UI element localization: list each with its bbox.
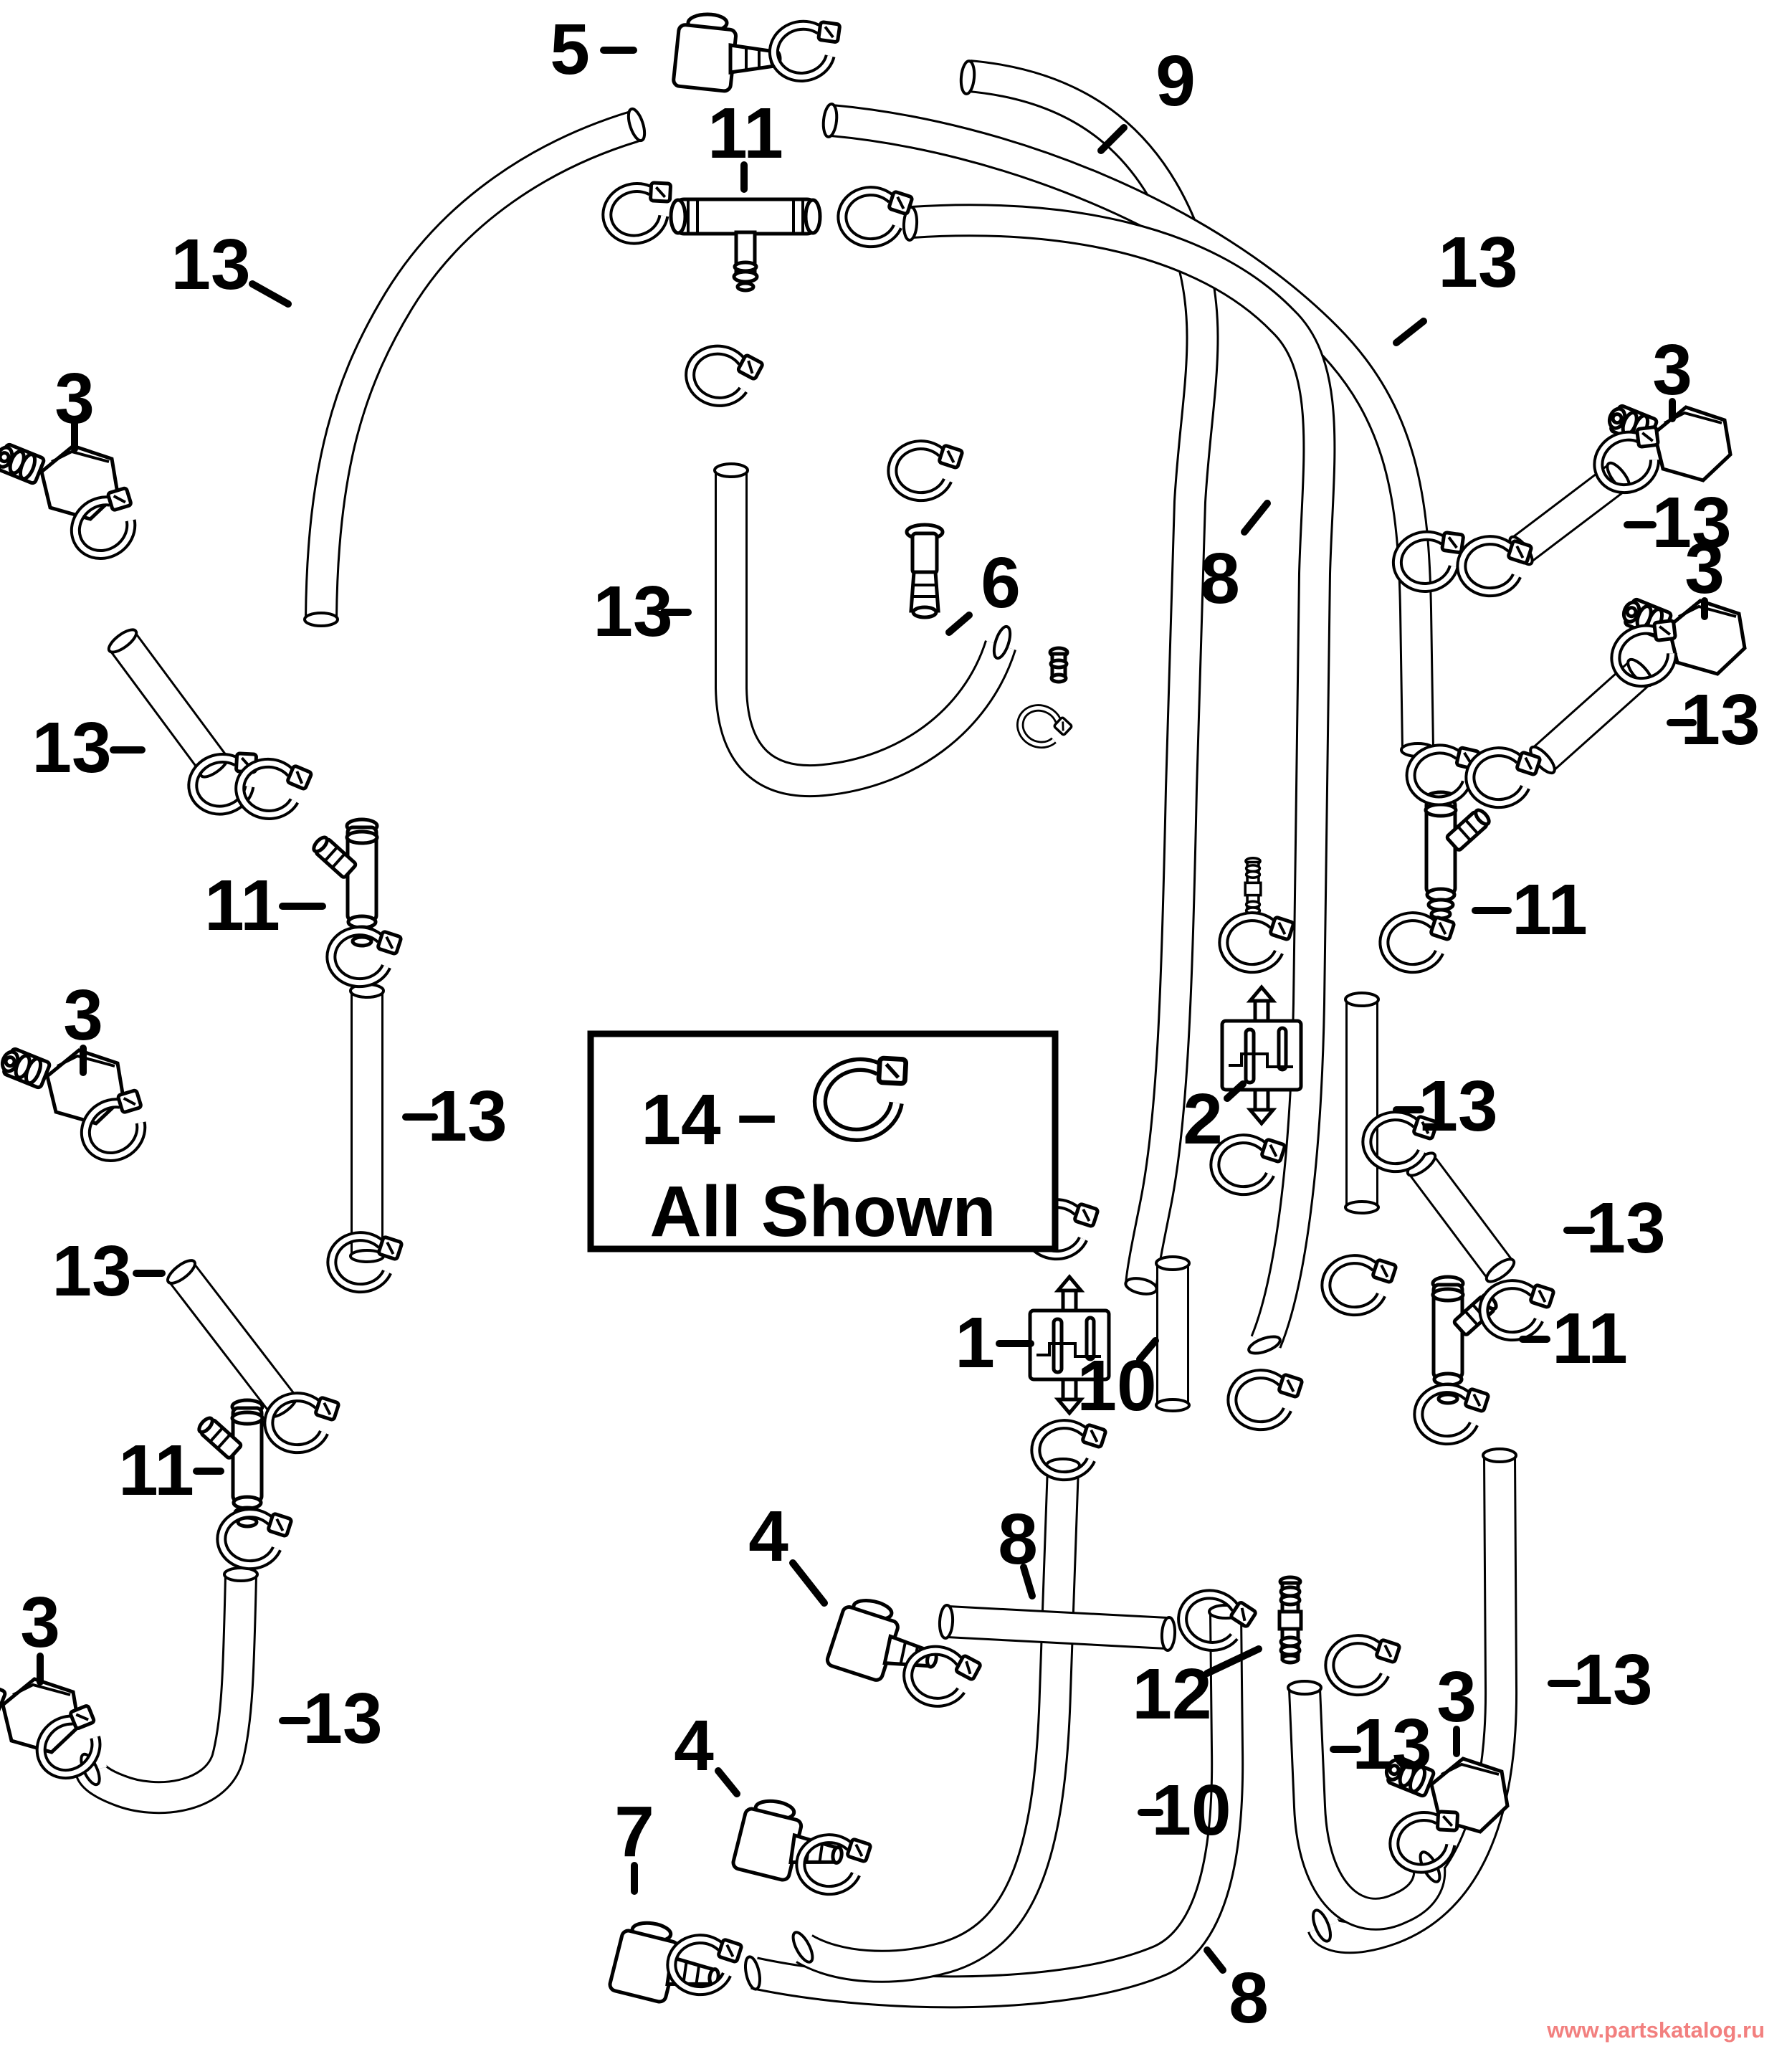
hose-13-bottom-left <box>77 1568 257 1797</box>
hose-clamp <box>686 346 764 409</box>
hose-clamp <box>904 1646 982 1709</box>
hose-8-middle <box>939 1605 1176 1651</box>
hose-clamp <box>770 19 848 82</box>
small-fitting <box>1050 648 1067 682</box>
callout-3-l2: 3 <box>63 975 103 1055</box>
note-box-caption: All Shown <box>649 1171 996 1252</box>
callout-13-tr: 13 <box>1438 222 1517 303</box>
hose-clamp <box>1470 752 1540 804</box>
callout-10-a: 10 <box>1077 1346 1156 1426</box>
hose-13-right-angled-middle <box>1527 656 1656 776</box>
hose-clamp <box>1326 1260 1396 1311</box>
callout-11-r2: 11 <box>1552 1298 1628 1379</box>
watermark-link[interactable]: www.partskatalog.ru <box>1546 2017 1765 2043</box>
note-box-part-number: 14 <box>641 1080 721 1160</box>
hose-clamp <box>1384 917 1454 969</box>
callout-13-r2: 13 <box>1680 680 1760 760</box>
callout-3-r1: 3 <box>1652 330 1692 410</box>
callout-11-r1: 11 <box>1512 870 1588 950</box>
callout-7: 7 <box>614 1792 654 1872</box>
callout-13-l4: 13 <box>302 1678 382 1759</box>
diagram-canvas: 14 – All Shown <box>0 0 1792 2049</box>
callout-13-r5: 13 <box>1586 1188 1665 1268</box>
callout-8-bottom: 8 <box>1229 1958 1269 2038</box>
hose-clamp <box>842 191 912 243</box>
callout-11-top: 11 <box>707 93 783 173</box>
callout-10-b: 10 <box>1151 1770 1231 1850</box>
note-box-14: 14 – All Shown <box>591 1034 1055 1252</box>
hose-13-right-straight <box>1345 993 1378 1213</box>
callout-3-r3: 3 <box>1436 1657 1477 1737</box>
hose-clamp <box>1014 701 1074 755</box>
elbow-connector-5 <box>673 14 780 92</box>
callout-11-l2: 11 <box>118 1430 194 1511</box>
callout-4-b: 4 <box>674 1706 714 1786</box>
callout-11-l1: 11 <box>204 865 280 946</box>
callout-12: 12 <box>1132 1654 1211 1734</box>
hose-13-top-right <box>822 103 1434 756</box>
hose-clamp <box>1330 1640 1400 1691</box>
callout-13-r6: 13 <box>1573 1640 1652 1720</box>
inline-coupler-12 <box>1279 1577 1301 1663</box>
small-check-fitting <box>1245 858 1261 920</box>
hose-clamp <box>892 445 963 497</box>
callout-5: 5 <box>550 9 590 90</box>
elbow-connector-4-upper <box>824 1594 945 1692</box>
fittings <box>0 14 1745 2010</box>
hose-clamp <box>1224 917 1294 969</box>
callout-13-l2: 13 <box>427 1076 507 1156</box>
hose-clamp <box>1462 541 1532 592</box>
barb-connector-3-left-2 <box>0 1046 123 1123</box>
callout-13-l1: 13 <box>32 708 111 788</box>
callout-13-r4: 13 <box>1352 1704 1431 1784</box>
callout-3-l3: 3 <box>20 1582 60 1663</box>
callout-3-r2: 3 <box>1684 528 1725 609</box>
callout-8-mid: 8 <box>998 1499 1038 1579</box>
hose-13-right-angled-lower <box>1404 1149 1517 1285</box>
hose-10-upper <box>1156 1257 1189 1411</box>
callout-13-l3: 13 <box>52 1231 131 1311</box>
barb-connector-3-right-1 <box>1606 403 1730 480</box>
callout-13-tl: 13 <box>171 224 250 305</box>
callout-3-l1: 3 <box>54 358 95 439</box>
hose-13-left-angled-lower <box>164 1257 300 1421</box>
callout-1: 1 <box>955 1303 995 1383</box>
note-box-separator: – <box>737 1074 777 1154</box>
callout-8-top: 8 <box>1200 538 1240 619</box>
callout-4-a: 4 <box>748 1496 788 1577</box>
hose-13-center <box>715 464 1014 781</box>
callout-2: 2 <box>1183 1079 1223 1159</box>
barb-connector-3-left-1 <box>0 442 118 519</box>
check-valve-11-left-2 <box>196 1400 262 1526</box>
callout-6: 6 <box>981 543 1021 623</box>
hose-13-left-straight <box>351 984 383 1262</box>
hose-13-top-left <box>305 107 648 626</box>
callout-13-c: 13 <box>593 571 672 652</box>
check-valve-11-right-1 <box>1426 792 1492 918</box>
hose-clamp <box>1232 1374 1302 1426</box>
parts-diagram-page: 14 – All Shown <box>0 0 1792 2049</box>
callout-13-r3: 13 <box>1418 1066 1497 1146</box>
hose-clamp <box>1215 1139 1285 1191</box>
hose-clamp <box>269 1397 339 1449</box>
straight-fitting-6 <box>907 525 943 617</box>
callout-9: 9 <box>1155 41 1196 121</box>
tee-fitting-11-top <box>671 199 820 290</box>
